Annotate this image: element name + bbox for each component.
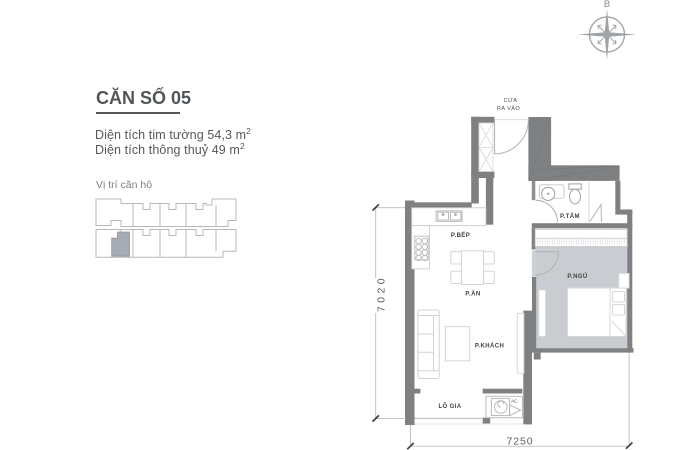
svg-text:LÔ GIA: LÔ GIA	[438, 402, 461, 410]
svg-text:7020: 7020	[375, 275, 387, 312]
svg-text:P.NGỦ: P.NGỦ	[567, 273, 587, 280]
svg-text:B: B	[604, 0, 610, 10]
svg-text:P.TẮM: P.TẮM	[560, 212, 580, 220]
svg-text:P.KHÁCH: P.KHÁCH	[475, 342, 504, 349]
svg-text:AC: AC	[511, 399, 518, 405]
svg-text:CỬA: CỬA	[504, 97, 518, 104]
svg-text:7250: 7250	[507, 436, 534, 448]
svg-text:P.BẾP: P.BẾP	[451, 232, 470, 239]
svg-text:RA VÀO: RA VÀO	[497, 105, 520, 112]
svg-text:P.ĂN: P.ĂN	[465, 290, 480, 297]
